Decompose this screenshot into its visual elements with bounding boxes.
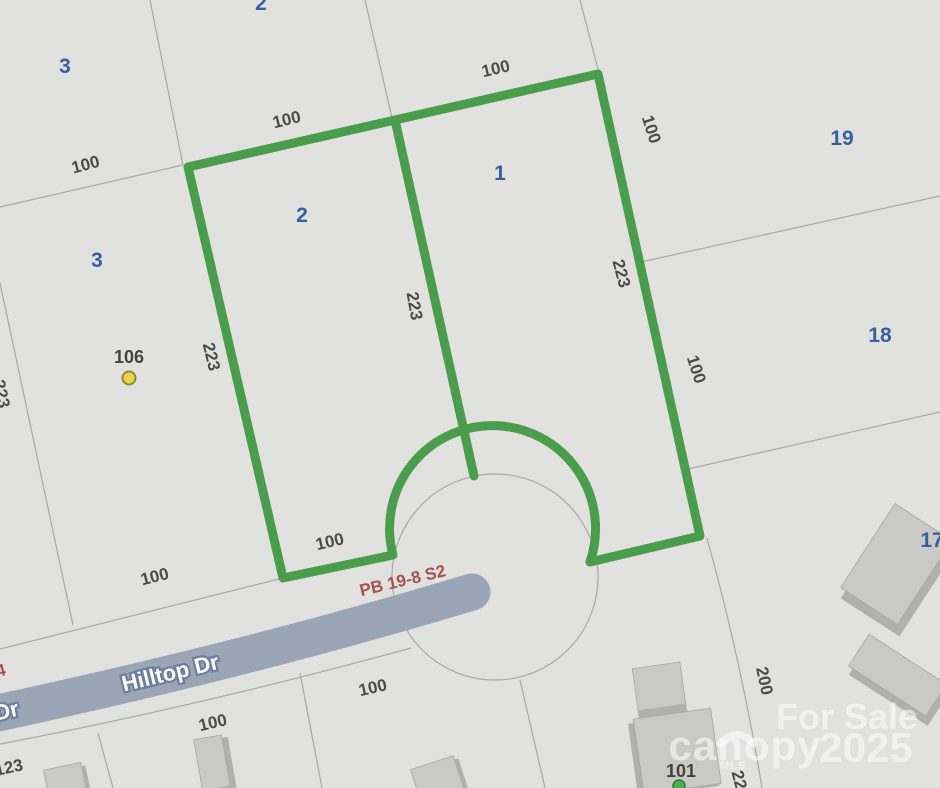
- watermark-brand-sub: MLS: [720, 760, 746, 772]
- parcel-line: [98, 733, 113, 788]
- dimension-label: 200: [752, 665, 776, 697]
- hilltop-dr-road: [0, 592, 472, 719]
- parcel-line: [688, 412, 940, 469]
- dimension-label: 100: [638, 113, 665, 146]
- lot-number-labels: 3 2 3 2 1 19 18 17: [59, 0, 940, 552]
- lot-number: 18: [868, 324, 892, 347]
- dimension-label: 100: [314, 529, 346, 554]
- parcel-line: [641, 196, 940, 262]
- watermark-year: 2025: [819, 724, 912, 771]
- lot-number: 1: [494, 162, 506, 185]
- plat-map: 100 100 100 100 223 223 223 100 223 100 …: [0, 0, 940, 788]
- dimension-label: 100: [139, 564, 171, 589]
- dimension-label: 100: [480, 56, 512, 81]
- dimension-label: 223: [608, 257, 634, 289]
- dimension-label: 100: [197, 710, 229, 735]
- lot-number: 19: [830, 127, 853, 150]
- plat-map-canvas: 100 100 100 100 223 223 223 100 223 100 …: [0, 0, 940, 788]
- lot-number: 3: [59, 55, 71, 78]
- lot-number: 17: [920, 529, 940, 552]
- dimension-label: 100: [69, 152, 101, 178]
- selected-parcels-outline: [188, 74, 700, 578]
- dimension-label: 223: [0, 378, 14, 410]
- address-point-101: [673, 780, 685, 788]
- building-footprint: [411, 755, 471, 788]
- dimension-label: 100: [357, 675, 389, 700]
- building-footprint: [44, 762, 92, 788]
- lot-number: 3: [91, 249, 103, 272]
- building-footprint: [836, 504, 940, 637]
- parcel-line: [520, 680, 545, 788]
- dimension-label: 123: [0, 755, 25, 779]
- parcel-line: [365, 0, 392, 118]
- dimension-label: 223: [199, 341, 224, 373]
- parcel-line: [580, 0, 599, 73]
- address-point-106: [123, 372, 136, 385]
- parcel-line: [0, 283, 73, 625]
- lot-number: 2: [255, 0, 267, 15]
- plat-book-label-partial: 4: [0, 660, 8, 681]
- lot-number: 2: [296, 204, 308, 227]
- watermark: For Sale canopy MLS 2025: [668, 696, 918, 772]
- dimension-label: 100: [683, 353, 710, 386]
- parcel-line: [150, 0, 183, 165]
- building-footprint: [194, 734, 238, 788]
- parcel-line: [300, 673, 322, 788]
- dimension-label: 100: [271, 107, 303, 132]
- dimension-label: 223: [403, 290, 427, 321]
- address-label: 106: [114, 347, 144, 367]
